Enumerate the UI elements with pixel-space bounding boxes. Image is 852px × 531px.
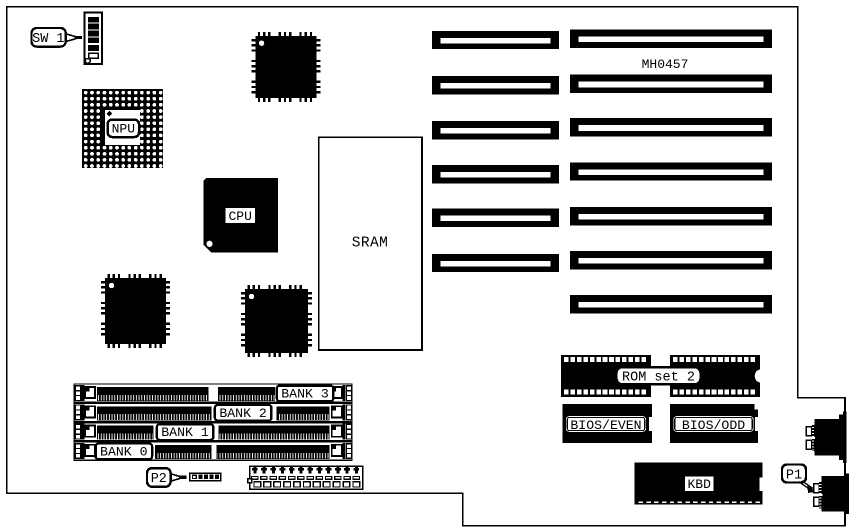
svg-text:BANK 2: BANK 2 — [219, 406, 266, 421]
svg-text:NPU: NPU — [112, 122, 135, 137]
svg-text:P1: P1 — [786, 468, 802, 483]
svg-text:BANK 1: BANK 1 — [161, 425, 209, 440]
svg-text:CPU: CPU — [228, 209, 251, 224]
svg-text:ROM set 2: ROM set 2 — [622, 370, 695, 385]
svg-text:BIOS/ODD: BIOS/ODD — [682, 418, 745, 433]
svg-text:BIOS/EVEN: BIOS/EVEN — [570, 418, 641, 433]
svg-text:KBD: KBD — [687, 477, 711, 492]
svg-text:MH0457: MH0457 — [642, 57, 689, 72]
svg-text:BANK 0: BANK 0 — [100, 445, 148, 460]
svg-text:SRAM: SRAM — [352, 235, 388, 251]
svg-text:P2: P2 — [151, 472, 167, 487]
svg-text:BANK 3: BANK 3 — [281, 387, 329, 402]
svg-text:SW 1: SW 1 — [32, 32, 64, 47]
